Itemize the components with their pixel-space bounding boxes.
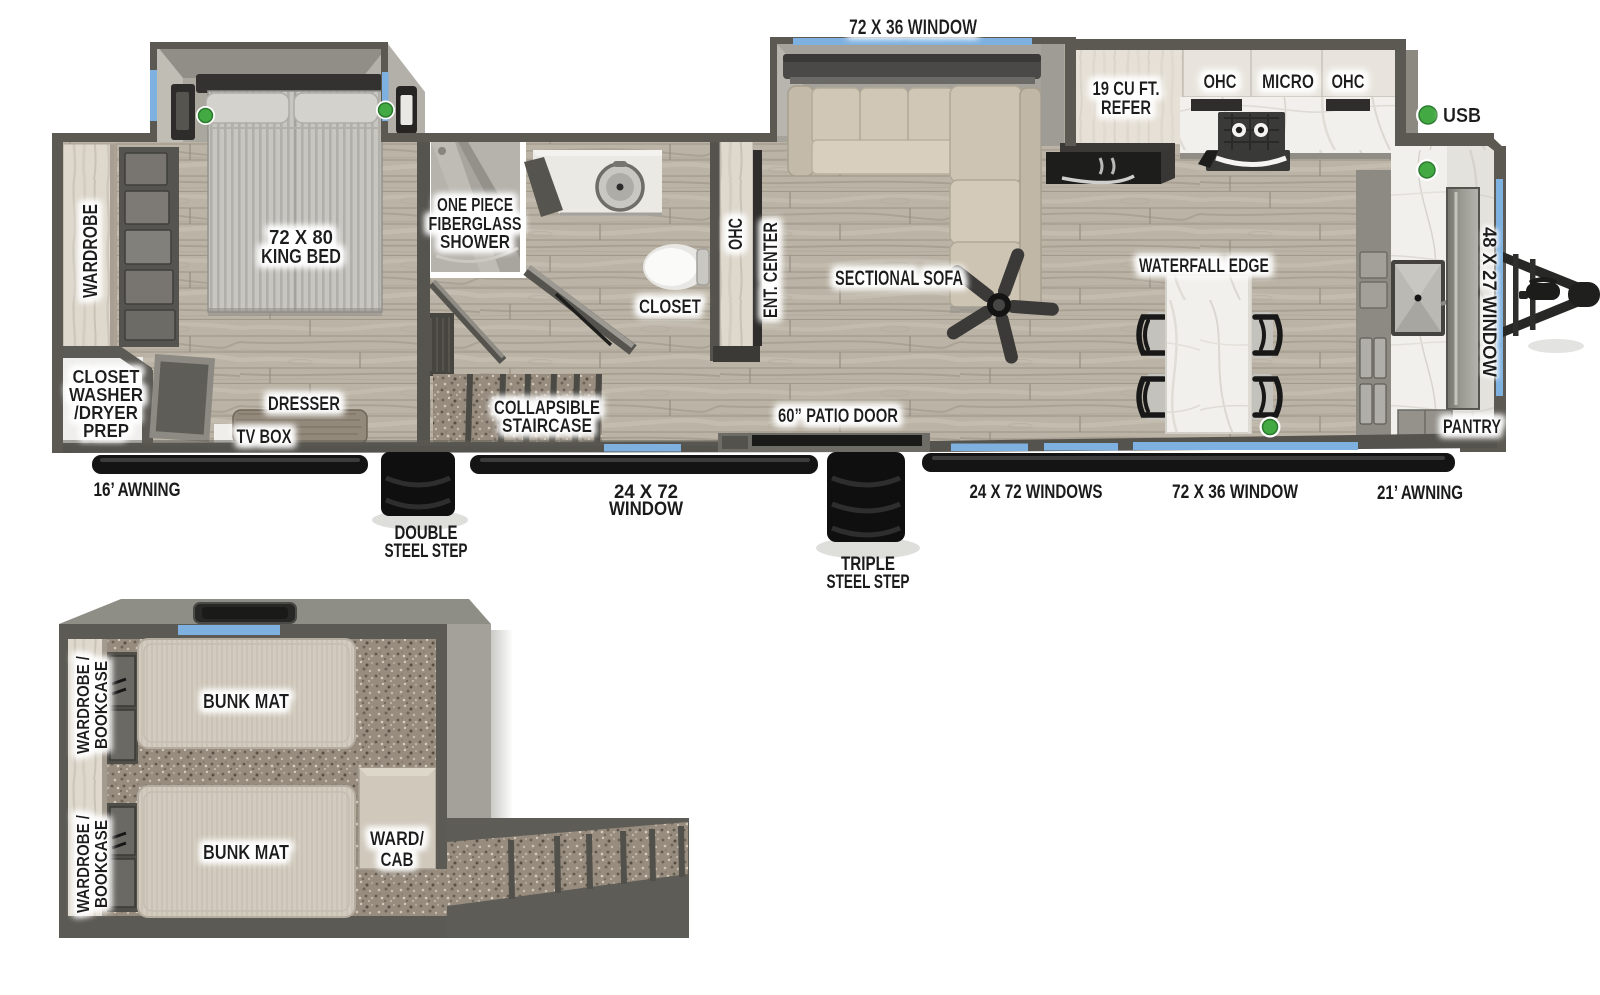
svg-text:SECTIONAL SOFA: SECTIONAL SOFA: [835, 267, 963, 290]
svg-text:48 X 27 WINDOW: 48 X 27 WINDOW: [1478, 227, 1499, 377]
svg-text:PANTRY: PANTRY: [1443, 417, 1501, 438]
svg-text:WINDOW: WINDOW: [609, 499, 683, 520]
svg-text:MICRO: MICRO: [1262, 71, 1314, 93]
svg-text:ONE PIECE: ONE PIECE: [437, 194, 513, 215]
svg-text:DRESSER: DRESSER: [268, 394, 340, 415]
svg-text:PREP: PREP: [83, 420, 129, 441]
svg-text:ENT. CENTER: ENT. CENTER: [761, 222, 782, 318]
svg-text:OHC: OHC: [726, 218, 747, 250]
svg-text:72 X 36 WINDOW: 72 X 36 WINDOW: [1172, 482, 1298, 503]
svg-text:CLOSET: CLOSET: [639, 297, 701, 318]
svg-text:SHOWER: SHOWER: [440, 231, 510, 252]
svg-text:16’ AWNING: 16’ AWNING: [94, 480, 181, 501]
svg-text:KING BED: KING BED: [261, 246, 341, 268]
svg-text:BOOKCASE: BOOKCASE: [91, 661, 111, 749]
svg-text:USB: USB: [1443, 105, 1481, 127]
svg-text:72 X 36 WINDOW: 72 X 36 WINDOW: [849, 16, 977, 39]
svg-text:STEEL STEP: STEEL STEP: [827, 572, 910, 593]
svg-text:WATERFALL EDGE: WATERFALL EDGE: [1139, 255, 1269, 277]
svg-text:WARDROBE /: WARDROBE /: [73, 656, 93, 754]
svg-text:BUNK MAT: BUNK MAT: [203, 842, 289, 864]
svg-text:TV BOX: TV BOX: [237, 427, 292, 448]
svg-text:STAIRCASE: STAIRCASE: [502, 416, 592, 437]
svg-text:WARDROBE: WARDROBE: [80, 204, 102, 298]
svg-text:21’ AWNING: 21’ AWNING: [1377, 483, 1463, 504]
svg-text:24 X 72 WINDOWS: 24 X 72 WINDOWS: [970, 482, 1103, 503]
svg-text:WARD/: WARD/: [370, 829, 425, 850]
svg-text:60” PATIO DOOR: 60” PATIO DOOR: [778, 406, 898, 427]
svg-text:WARDROBE /: WARDROBE /: [73, 815, 93, 913]
svg-text:CAB: CAB: [381, 850, 414, 871]
svg-text:STEEL STEP: STEEL STEP: [385, 541, 468, 562]
svg-text:BOOKCASE: BOOKCASE: [91, 820, 111, 908]
svg-text:BUNK MAT: BUNK MAT: [203, 691, 289, 713]
svg-text:REFER: REFER: [1101, 97, 1151, 119]
svg-text:OHC: OHC: [1204, 71, 1237, 93]
svg-text:OHC: OHC: [1332, 71, 1365, 93]
